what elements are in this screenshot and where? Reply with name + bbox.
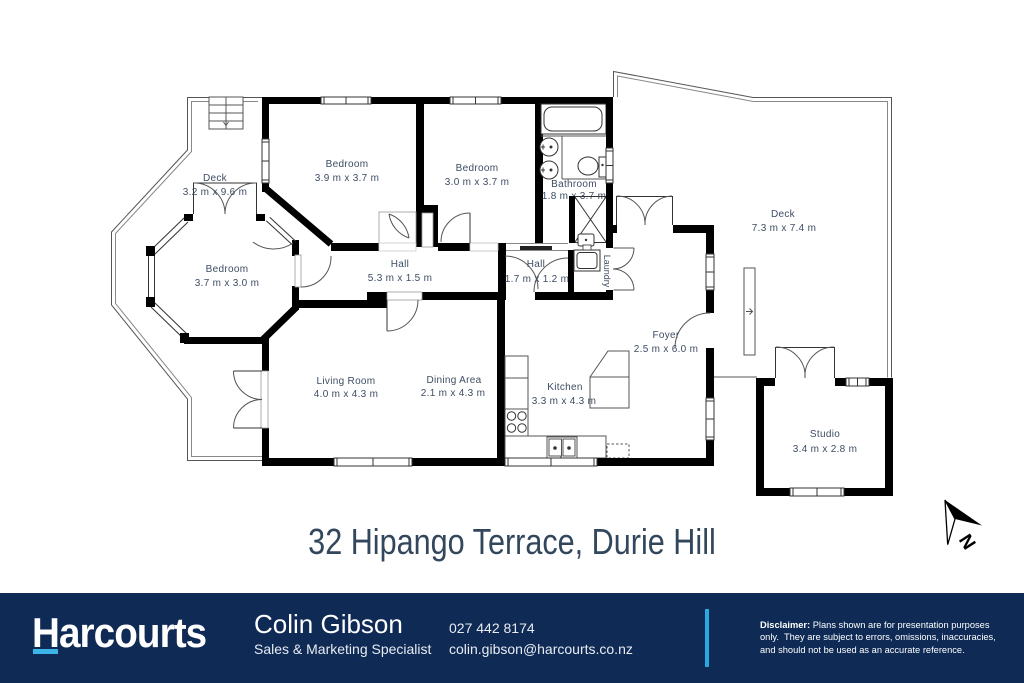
svg-text:5.3 m x 1.5 m: 5.3 m x 1.5 m — [368, 273, 432, 284]
svg-text:7.3 m x 7.4 m: 7.3 m x 7.4 m — [752, 223, 816, 234]
svg-text:Deck: Deck — [203, 173, 228, 184]
svg-text:Dining Area: Dining Area — [427, 375, 482, 386]
svg-text:Deck: Deck — [771, 209, 796, 220]
svg-text:Bedroom: Bedroom — [206, 264, 249, 275]
svg-text:Living Room: Living Room — [317, 376, 376, 387]
svg-text:3.0 m x 3.7 m: 3.0 m x 3.7 m — [445, 177, 509, 188]
svg-text:2.5 m x 6.0 m: 2.5 m x 6.0 m — [634, 344, 698, 355]
svg-text:3.3 m x 4.3 m: 3.3 m x 4.3 m — [532, 396, 596, 407]
svg-text:Hall: Hall — [391, 259, 409, 270]
svg-text:Bedroom: Bedroom — [326, 159, 369, 170]
svg-text:1.7 m x 1.2 m: 1.7 m x 1.2 m — [505, 274, 569, 285]
svg-text:Hall: Hall — [527, 259, 545, 270]
svg-text:3.7 m x 3.0 m: 3.7 m x 3.0 m — [195, 278, 259, 289]
svg-text:2.1 m x 4.3 m: 2.1 m x 4.3 m — [421, 388, 485, 399]
svg-text:Laundry: Laundry — [602, 255, 612, 288]
svg-text:N: N — [954, 531, 979, 554]
svg-text:Studio: Studio — [810, 429, 840, 440]
svg-text:3.4 m x 2.8 m: 3.4 m x 2.8 m — [793, 444, 857, 455]
svg-text:Foyer: Foyer — [652, 330, 679, 341]
svg-text:3.9 m x 3.7 m: 3.9 m x 3.7 m — [315, 173, 379, 184]
svg-text:Bathroom: Bathroom — [551, 179, 597, 190]
svg-text:Bedroom: Bedroom — [456, 163, 499, 174]
svg-text:Kitchen: Kitchen — [547, 382, 582, 393]
svg-text:4.0 m x 4.3 m: 4.0 m x 4.3 m — [314, 389, 378, 400]
